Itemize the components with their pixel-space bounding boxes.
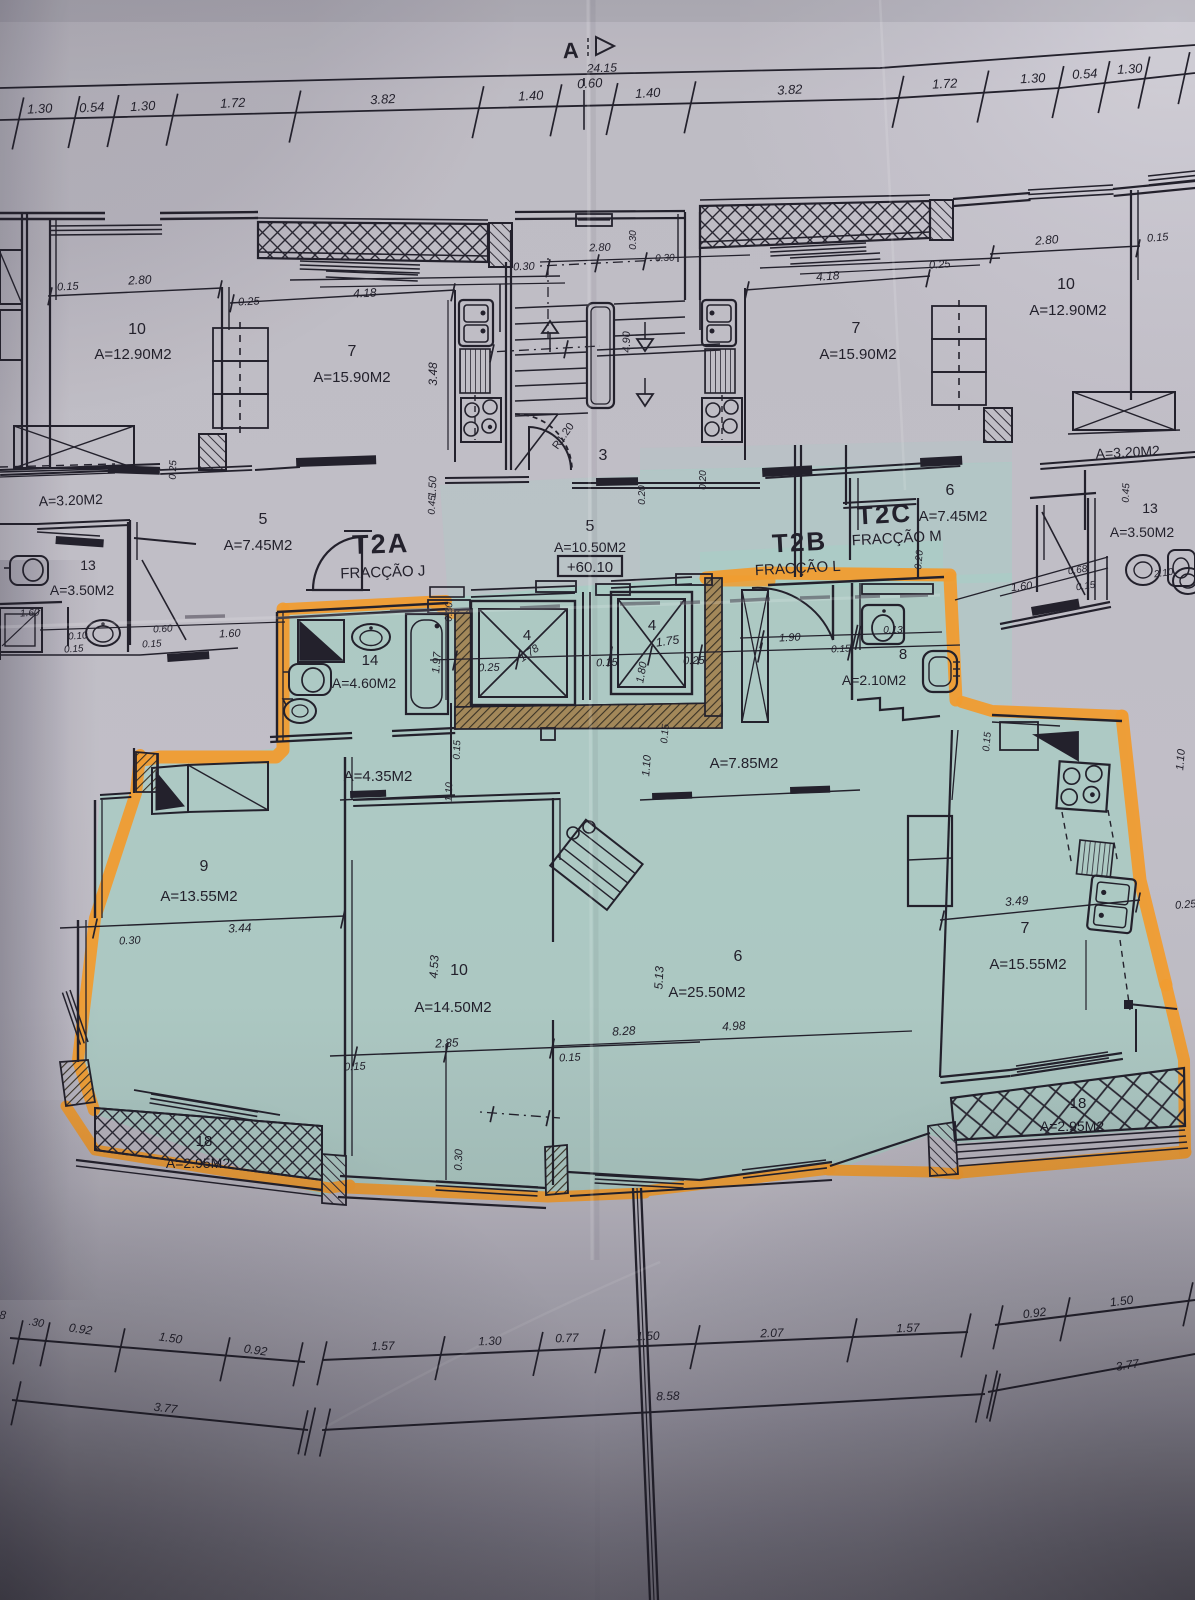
svg-text:1.30: 1.30 <box>130 98 157 114</box>
svg-text:0.25: 0.25 <box>683 655 706 668</box>
svg-text:T2B: T2B <box>771 526 828 559</box>
svg-text:0.45: 0.45 <box>427 495 439 515</box>
svg-text:1.10: 1.10 <box>1174 748 1188 771</box>
svg-text:0.15: 0.15 <box>831 643 851 655</box>
svg-text:7: 7 <box>348 343 357 360</box>
svg-text:A=7.45M2: A=7.45M2 <box>224 537 293 554</box>
svg-text:0.30: 0.30 <box>119 934 142 947</box>
svg-text:0.60: 0.60 <box>153 623 173 635</box>
svg-text:A=7.45M2: A=7.45M2 <box>919 508 988 525</box>
svg-text:4.18: 4.18 <box>353 285 377 300</box>
svg-text:13: 13 <box>1142 500 1158 516</box>
svg-text:0.25: 0.25 <box>1175 898 1195 912</box>
svg-text:FRACÇÃO J: FRACÇÃO J <box>340 563 426 583</box>
svg-text:1.40: 1.40 <box>518 87 545 103</box>
svg-text:2.80: 2.80 <box>1034 232 1060 248</box>
svg-text:0.13: 0.13 <box>883 625 903 636</box>
svg-text:0.30: 0.30 <box>513 261 536 274</box>
svg-text:3.44: 3.44 <box>228 920 252 935</box>
svg-text:A=3.20M2: A=3.20M2 <box>38 491 103 509</box>
svg-text:A=12.90M2: A=12.90M2 <box>1029 302 1106 319</box>
svg-text:A=3.50M2: A=3.50M2 <box>1110 524 1174 540</box>
svg-text:0.15: 0.15 <box>64 643 85 655</box>
svg-text:0.45: 0.45 <box>1121 483 1133 503</box>
svg-text:3.82: 3.82 <box>370 91 397 107</box>
svg-text:9: 9 <box>200 858 209 875</box>
svg-text:3: 3 <box>599 447 608 464</box>
svg-text:7: 7 <box>852 320 861 337</box>
svg-text:10: 10 <box>128 321 146 338</box>
svg-text:A=3.50M2: A=3.50M2 <box>50 582 114 598</box>
svg-text:5: 5 <box>259 511 268 528</box>
svg-text:0.60: 0.60 <box>577 75 604 91</box>
svg-text:4: 4 <box>648 617 656 634</box>
svg-text:4: 4 <box>523 627 531 644</box>
svg-text:3.82: 3.82 <box>777 81 804 97</box>
svg-text:5.13: 5.13 <box>651 965 666 989</box>
svg-text:4.53: 4.53 <box>426 954 441 978</box>
svg-text:10: 10 <box>1057 276 1075 293</box>
svg-text:0.20: 0.20 <box>637 485 648 505</box>
svg-text:14: 14 <box>362 652 379 669</box>
svg-text:1.40: 1.40 <box>635 85 662 101</box>
svg-text:0.15: 0.15 <box>596 657 619 670</box>
svg-text:6: 6 <box>946 482 955 499</box>
svg-text:1.10: 1.10 <box>444 782 456 802</box>
svg-text:4.18: 4.18 <box>816 268 841 284</box>
svg-text:0.15: 0.15 <box>57 280 80 293</box>
svg-text:A=4.35M2: A=4.35M2 <box>344 768 413 785</box>
svg-text:A=13.55M2: A=13.55M2 <box>160 888 237 905</box>
svg-text:3.49: 3.49 <box>1004 893 1029 909</box>
svg-text:1.30: 1.30 <box>27 100 54 116</box>
svg-text:A=15.55M2: A=15.55M2 <box>989 956 1066 973</box>
svg-text:0.25: 0.25 <box>168 460 180 480</box>
svg-text:0.25: 0.25 <box>929 258 952 272</box>
svg-text:T2A: T2A <box>352 528 410 560</box>
svg-text:3.48: 3.48 <box>426 362 440 386</box>
svg-text:0.54: 0.54 <box>79 99 105 115</box>
svg-text:A=25.50M2: A=25.50M2 <box>668 984 745 1001</box>
svg-text:8: 8 <box>899 646 907 663</box>
svg-text:1.60: 1.60 <box>219 627 242 640</box>
svg-text:0.15: 0.15 <box>1147 231 1170 245</box>
svg-text:1.90: 1.90 <box>779 631 802 644</box>
svg-text:1.50: 1.50 <box>427 475 440 498</box>
svg-text:0.20: 0.20 <box>913 549 926 570</box>
svg-text:A=4.60M2: A=4.60M2 <box>332 675 396 691</box>
svg-text:A=12.90M2: A=12.90M2 <box>94 346 171 363</box>
svg-text:1.30: 1.30 <box>1020 70 1047 86</box>
svg-text:0.54: 0.54 <box>1072 66 1098 82</box>
svg-text:0.20: 0.20 <box>698 470 709 490</box>
svg-text:A=15.90M2: A=15.90M2 <box>819 346 896 363</box>
svg-text:24.15: 24.15 <box>586 60 618 75</box>
svg-text:10: 10 <box>450 962 468 979</box>
svg-text:0.15: 0.15 <box>452 740 464 760</box>
svg-text:A=2.10M2: A=2.10M2 <box>842 672 906 688</box>
svg-text:1.10: 1.10 <box>640 754 654 777</box>
svg-text:0.30: 0.30 <box>655 253 675 265</box>
svg-text:0.15: 0.15 <box>142 638 162 650</box>
svg-text:0.25: 0.25 <box>238 295 261 308</box>
svg-text:0.15: 0.15 <box>981 731 994 752</box>
svg-text:1.30: 1.30 <box>1117 61 1144 77</box>
svg-text:1.72: 1.72 <box>220 95 247 111</box>
svg-text:0.15: 0.15 <box>659 723 672 744</box>
svg-text:0.10: 0.10 <box>68 630 89 642</box>
svg-text:2.80: 2.80 <box>127 272 152 287</box>
svg-text:13: 13 <box>80 557 96 573</box>
svg-text:A=7.85M2: A=7.85M2 <box>710 755 779 772</box>
svg-text:0.25: 0.25 <box>478 662 501 675</box>
svg-text:A=15.90M2: A=15.90M2 <box>313 369 390 386</box>
svg-text:A: A <box>562 38 579 64</box>
svg-text:0.30: 0.30 <box>628 230 639 250</box>
svg-text:7: 7 <box>1021 920 1030 937</box>
svg-text:1.72: 1.72 <box>932 75 959 91</box>
svg-text:6: 6 <box>734 948 743 965</box>
